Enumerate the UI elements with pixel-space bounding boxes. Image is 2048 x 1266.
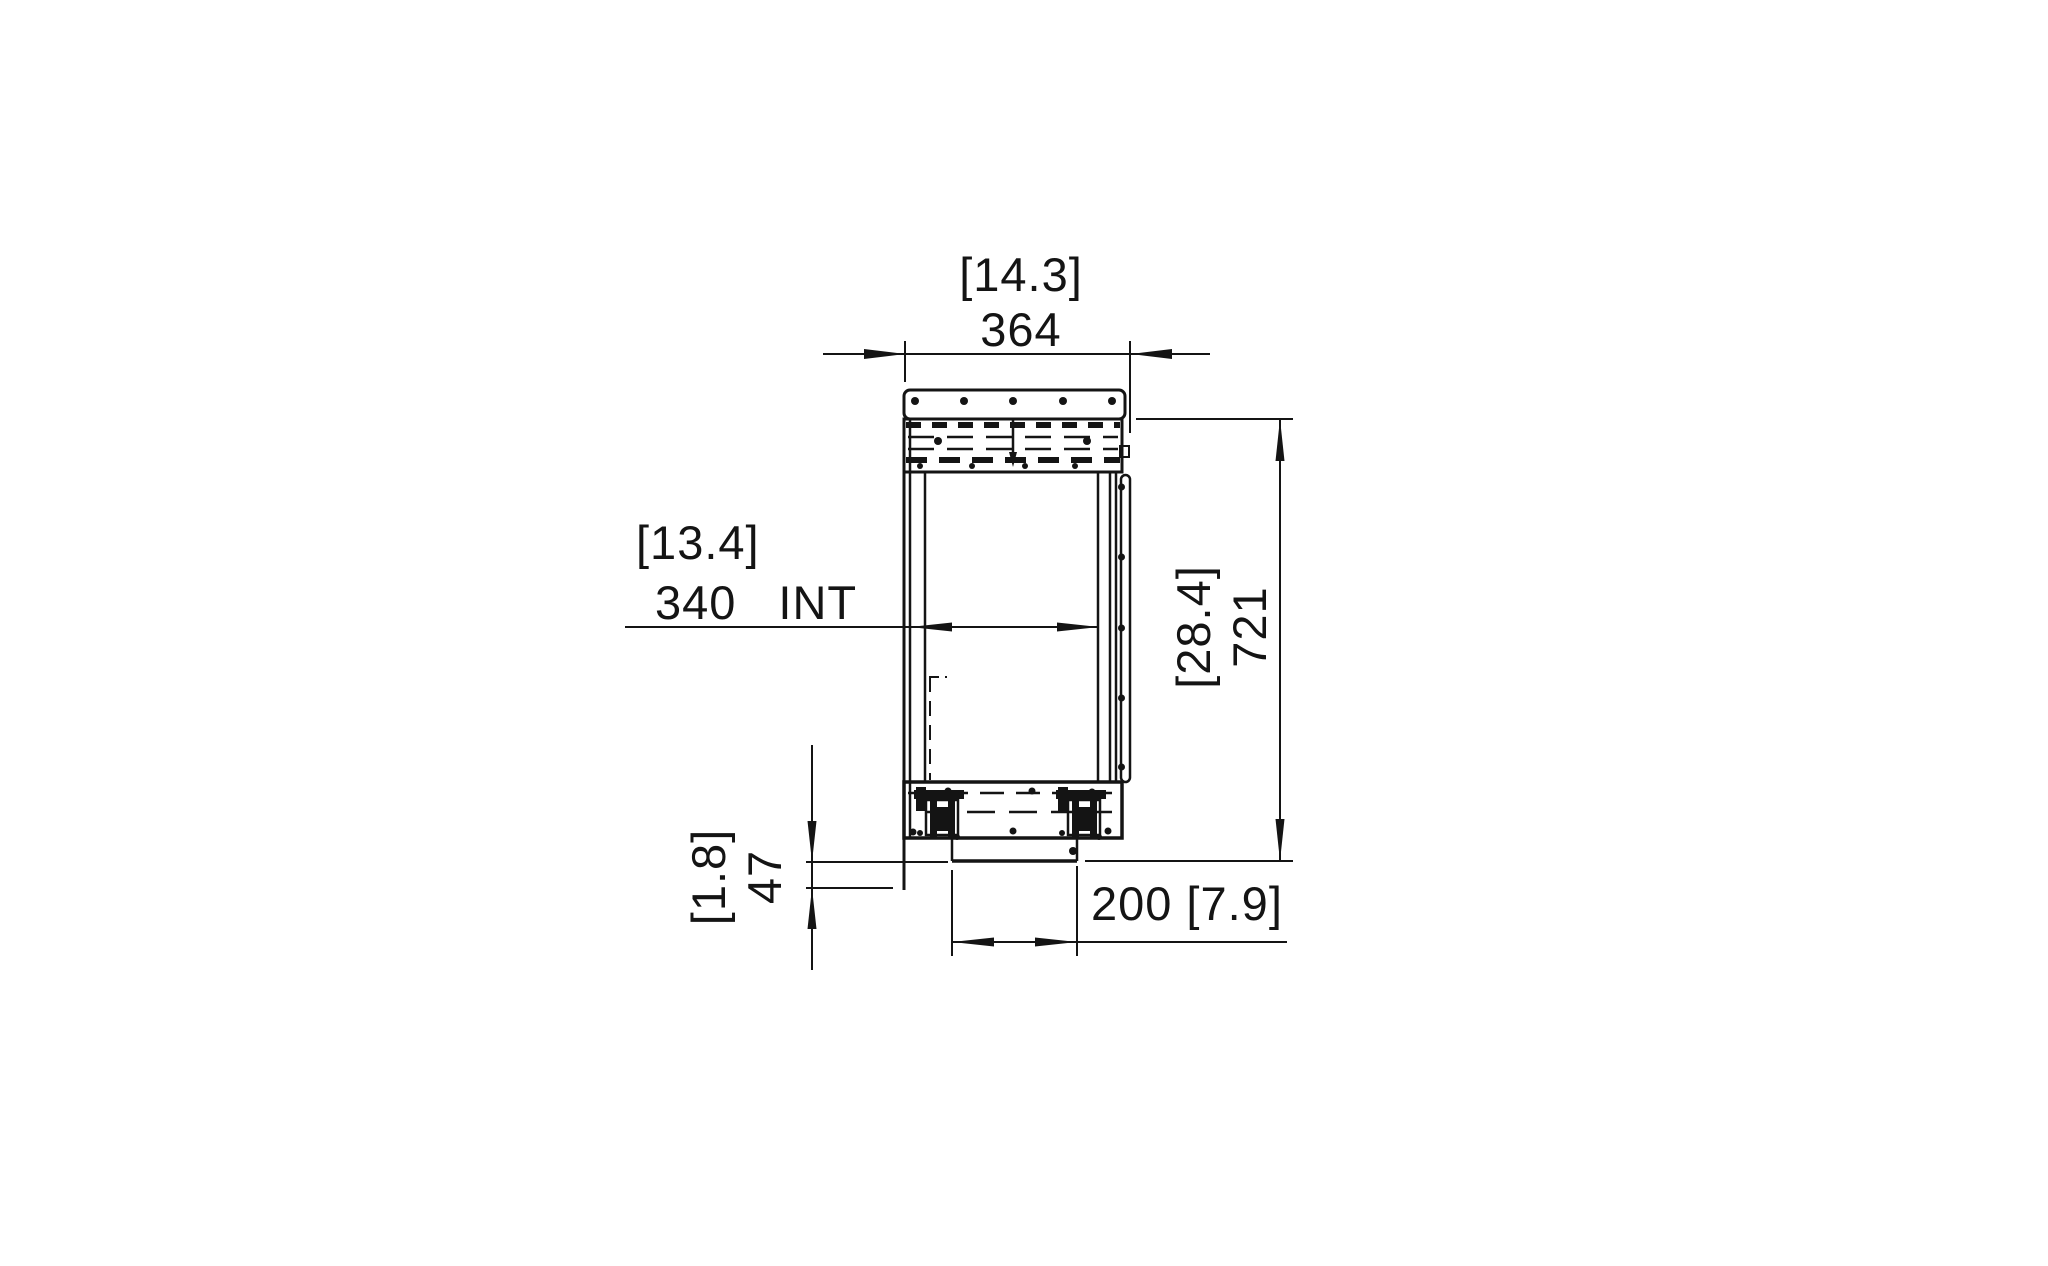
dim-overall-height-imperial: [28.4] <box>1166 565 1222 689</box>
dim-base-drop-metric: 47 <box>737 829 793 925</box>
dim-overall-height-label: [28.4] 721 <box>1166 565 1278 689</box>
dim-base-drop-lines <box>806 745 948 970</box>
dim-bottom-width-metric: 200 <box>1091 880 1172 927</box>
bottom-band <box>904 782 1122 840</box>
burner-clamp-left <box>914 787 964 840</box>
dim-bottom-width-imperial: [7.9] <box>1186 880 1282 927</box>
top-flange <box>904 390 1125 419</box>
dim-interior-width-label: 340 INT <box>655 579 857 626</box>
dim-interior-width-metric: 340 <box>655 579 736 626</box>
technical-drawing-page: [14.3] 364 [13.4] 340 INT [28.4] 721 [1.… <box>0 0 2048 1266</box>
dim-top-width-imperial: [14.3] <box>949 251 1093 298</box>
top-mounting-band <box>904 419 1129 472</box>
section-drawing <box>0 0 2048 1266</box>
right-glass-panel <box>1118 475 1130 782</box>
dim-bottom-width-label: 200 [7.9] <box>1091 880 1283 927</box>
dim-overall-height-metric: 721 <box>1222 565 1278 689</box>
bottom-outlet-tray <box>952 838 1077 861</box>
dim-base-drop-imperial: [1.8] <box>681 829 737 925</box>
dim-top-width-metric: 364 <box>949 306 1093 353</box>
dim-base-drop-label: [1.8] 47 <box>681 829 793 925</box>
burner-clamp-right <box>1056 787 1106 840</box>
dim-interior-width-suffix: INT <box>778 579 857 626</box>
dim-interior-width-imperial: [13.4] <box>636 519 760 566</box>
